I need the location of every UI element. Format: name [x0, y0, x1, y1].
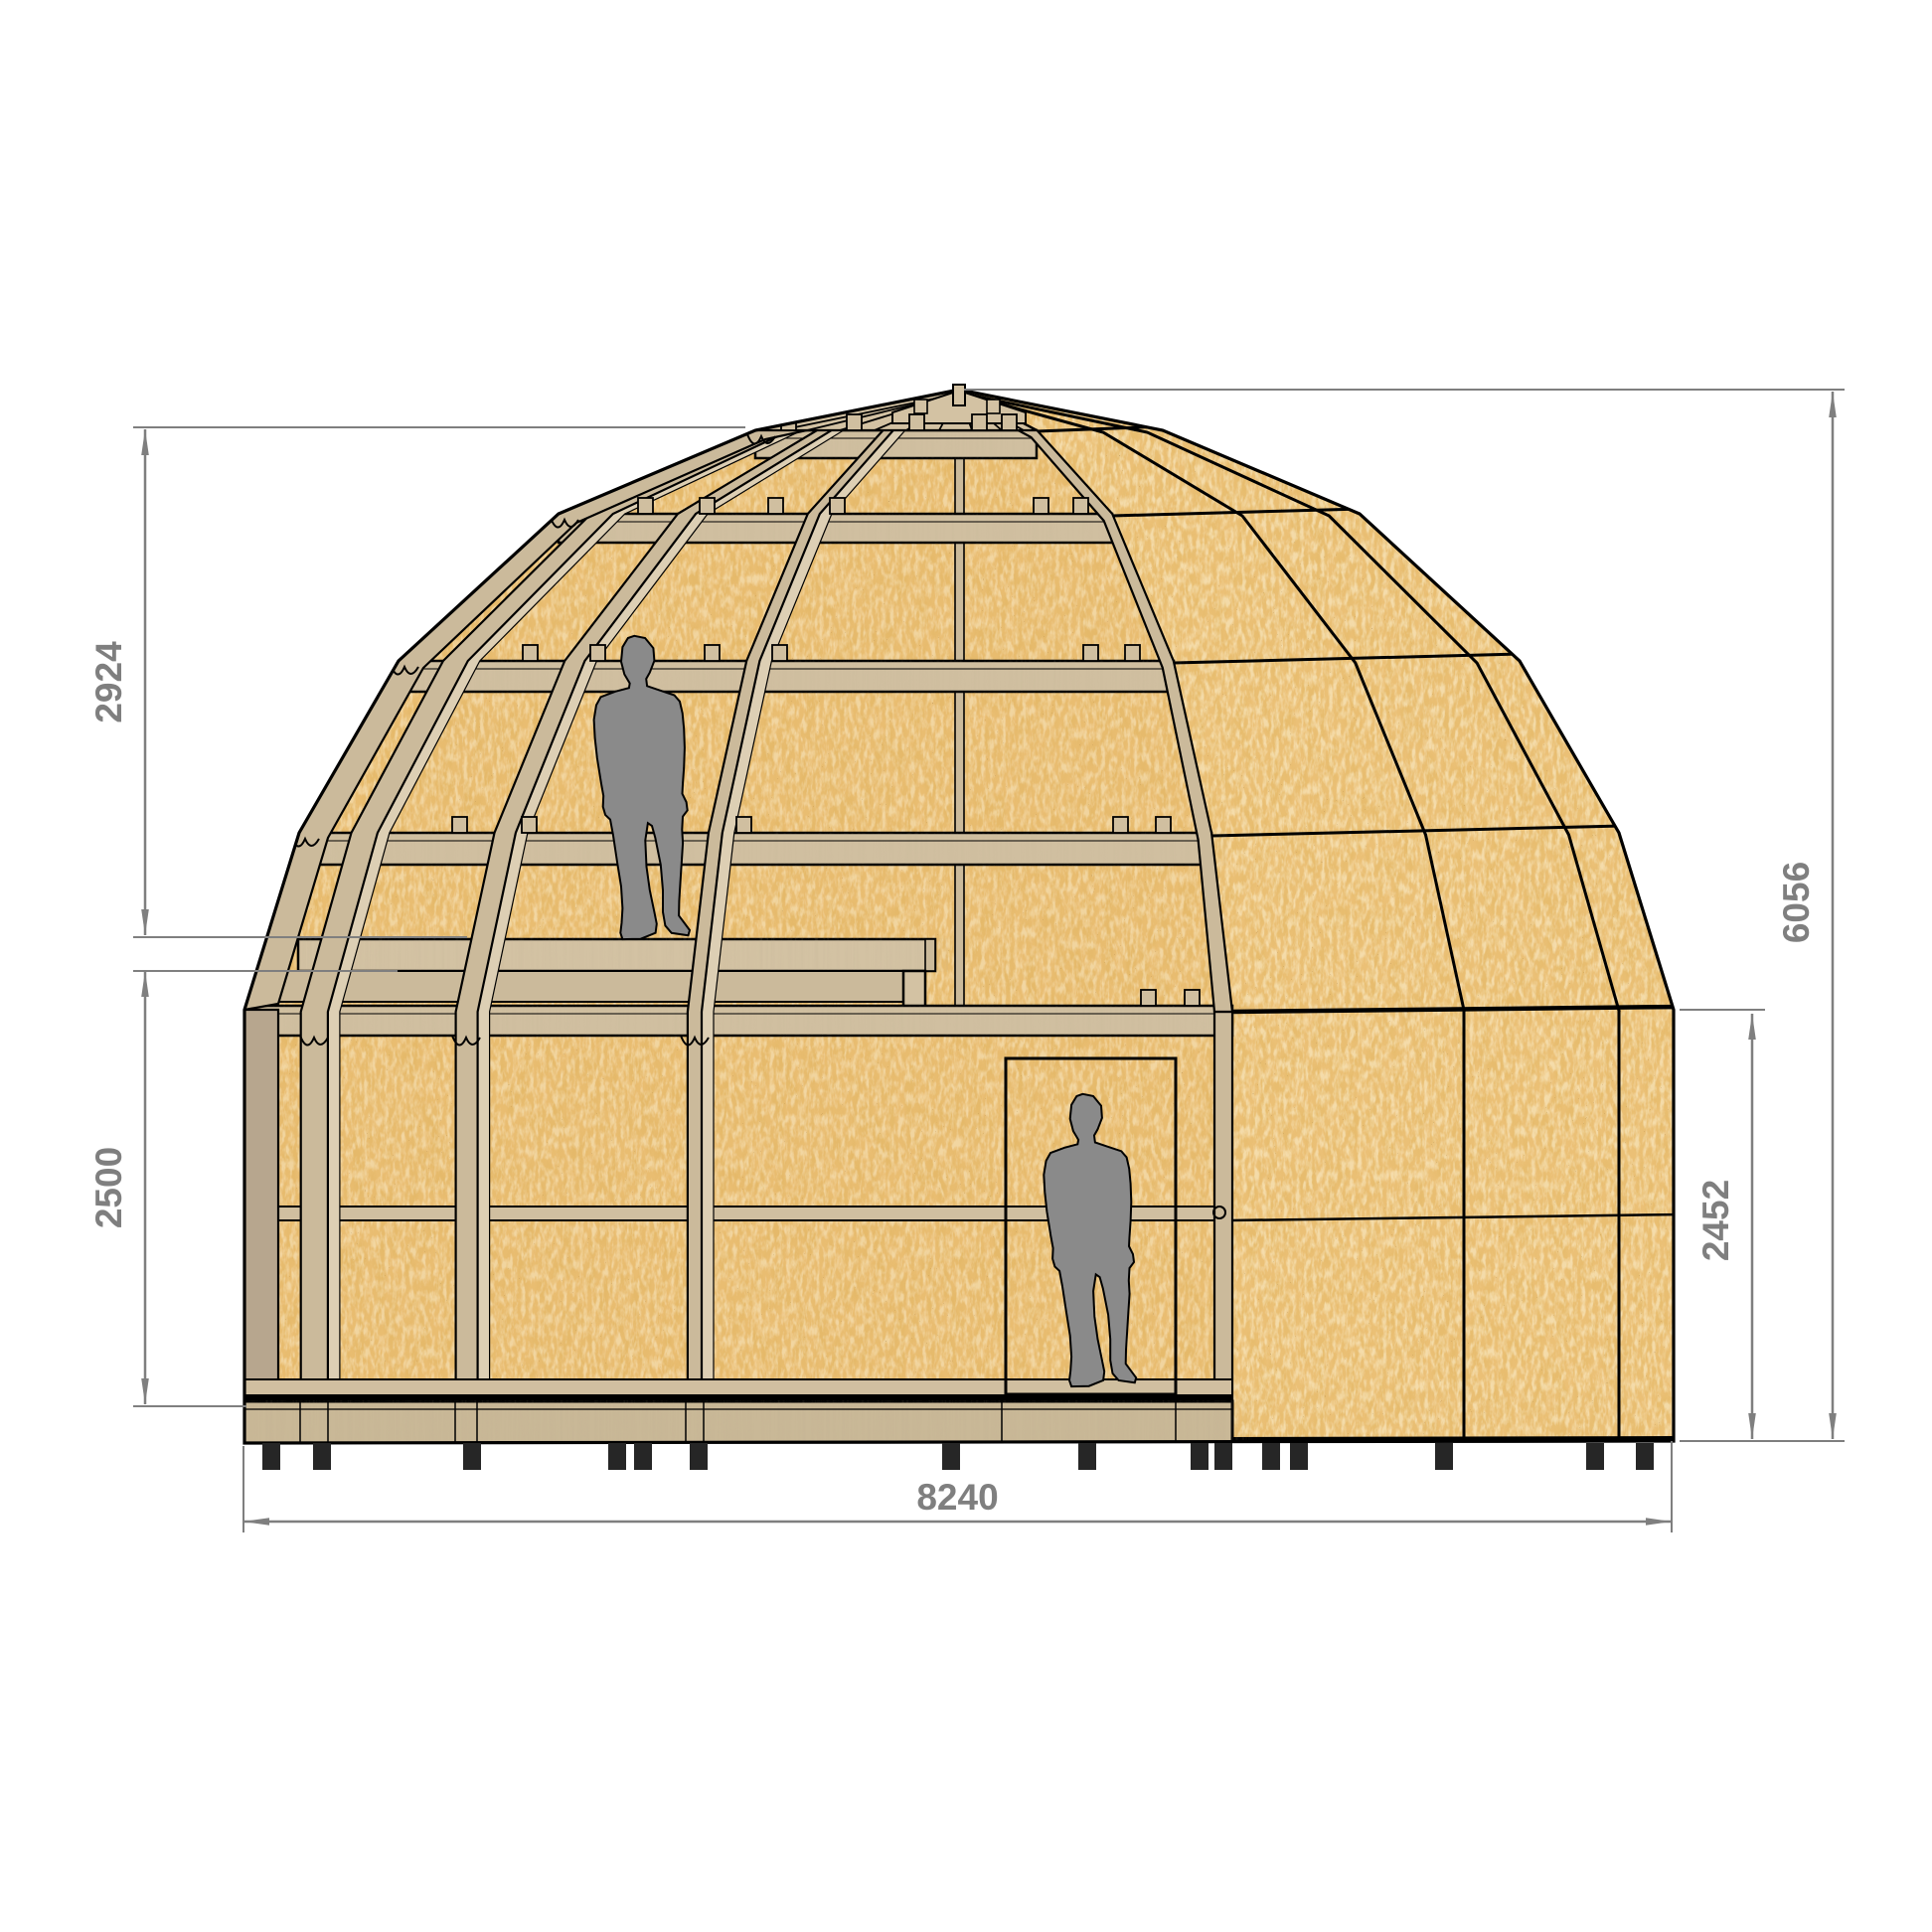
- svg-text:2500: 2500: [88, 1147, 129, 1228]
- svg-text:8240: 8240: [916, 1477, 998, 1518]
- svg-text:6056: 6056: [1776, 862, 1817, 943]
- svg-text:2924: 2924: [88, 641, 129, 724]
- svg-text:2452: 2452: [1695, 1180, 1736, 1261]
